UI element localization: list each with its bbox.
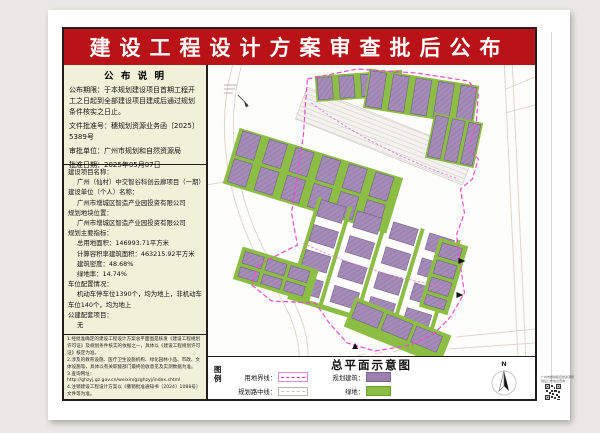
note-line: 2.涉及的教育设施、医疗卫生设施机构、绿化园林小品、市政、文体设施等，具体以有关… [67,358,203,372]
title-banner: 建设工程设计方案审查批后公布 [64,29,535,65]
boundary-swatch [278,372,308,382]
note-line: 4.注销建设工程设计方案以《撤销批准通知书〔2024〕1088号〕文件等为准。 [67,385,203,399]
north-label: N [501,360,506,368]
legend-row-1: 用地界线： 规划建筑： [230,372,391,382]
legend-centerline-label: 规划路中线： [230,387,276,396]
legend-strip: 总平面示意图 图例 用地界线： 规划建筑： 规划路中线： 绿地： [208,356,535,399]
project-line: 车位配置情况： [68,279,202,289]
announcement-line: 文件批准号：穗规划资源业务函〔2025〕5389号 [69,121,201,143]
project-line: 建筑密度：48.68% [68,259,202,269]
qr-block: 广州市规划和自然资源局 批后公布信息查询 [541,376,565,400]
paper-fold-line [551,32,552,388]
centerline-swatch [278,387,308,396]
announcement-header: 公 布 说 明 [69,68,201,82]
project-line: 机动车停车位1390个，均为地上，非机动车车位140个，均为地上 [68,289,202,309]
notes-lines: 1.经批准确定的建设工程设计方案总平面图是核发《建设工程规划许可证》及规划条件核… [67,337,203,399]
qr-code [545,384,561,400]
legend-item-boundary: 用地界线： [230,372,308,382]
planning-notice-page: { "banner": { "title": "建设工程设计工程方案审查批后公布… [0,0,600,433]
project-line: 无 [68,320,202,330]
project-line: 广州市增城区智造产业园投资有限公司 [68,218,202,228]
site-plan-svg [208,65,535,356]
announcement-lines: 公布期限：于本规划建设项目首期工程开工之日起到全部建设项目建成后通过规划条件核实… [69,85,201,171]
poster-paper: 建设工程设计方案审查批后公布 公 布 说 明 公布期限：于本规划建设项目首期工程… [48,10,570,420]
legend-green-label: 绿地： [324,387,364,396]
announcement-line: 审批单位：广州市规划和自然资源局 [69,146,201,157]
note-line: 3.查询网址：http://ghzyj.gz.gov.cn/weixin/gzg… [67,372,203,386]
qr-caption-2: 批后公布信息查询 [541,380,565,384]
info-column: 公 布 说 明 公布期限：于本规划建设项目首期工程开工之日起到全部建设项目建成后… [64,65,208,399]
poster-frame: 建设工程设计方案审查批后公布 公 布 说 明 公布期限：于本规划建设项目首期工程… [62,27,537,401]
legend-item-centerline: 规划路中线： [230,387,308,396]
project-line: 总用地面积：146993.71平方米 [68,238,202,248]
building-swatch [366,372,391,382]
project-line: 绿地率：14.74% [68,269,202,279]
notes-section: 1.经批准确定的建设工程设计方案总平面图是核发《建设工程规划许可证》及规划条件核… [64,335,206,399]
project-info-section: 建设项目名称：广州（仙村）中交智谷科创云廊项目（一期）建设单位（个人）名称：广州… [64,165,206,335]
map-title: 总平面示意图 [208,357,535,373]
project-line: 广州（仙村）中交智谷科创云廊项目（一期） [68,177,202,187]
page-title: 建设工程设计方案审查批后公布 [90,32,510,62]
project-lines: 建设项目名称：广州（仙村）中交智谷科创云廊项目（一期）建设单位（个人）名称：广州… [68,167,202,330]
project-line: 公建配套项目： [68,310,202,320]
legend-row-2: 规划路中线： 绿地： [230,386,391,396]
legend-building-label: 规划建筑： [324,373,364,382]
legend-item-green: 绿地： [308,386,391,396]
project-line: 广州市增城区智造产业园投资有限公司 [68,198,202,208]
legend-label: 图例 [214,365,225,383]
compass-needle [504,371,509,391]
project-line: 计算容积率建筑面积：463215.92平方米 [68,249,202,259]
announcement-line: 公布期限：于本规划建设项目首期工程开工之日起到全部建设项目建成后通过规划条件核实… [69,85,201,118]
legend-item-building: 规划建筑： [308,372,391,382]
annotation-arrow [244,102,248,107]
note-line: 1.经批准确定的建设工程设计方案总平面图是核发《建设工程规划许可证》及规划条件核… [67,337,203,358]
site-plan-map [208,65,535,356]
project-line: 规划主要指标： [68,228,202,238]
announcement-section: 公 布 说 明 公布期限：于本规划建设项目首期工程开工之日起到全部建设项目建成后… [64,65,206,165]
project-line: 规划地块位置： [68,208,202,218]
project-line: 建设单位（个人）名称： [68,187,202,197]
north-compass: N [491,359,517,403]
green-swatch [366,386,391,396]
legend-boundary-label: 用地界线： [230,373,276,382]
